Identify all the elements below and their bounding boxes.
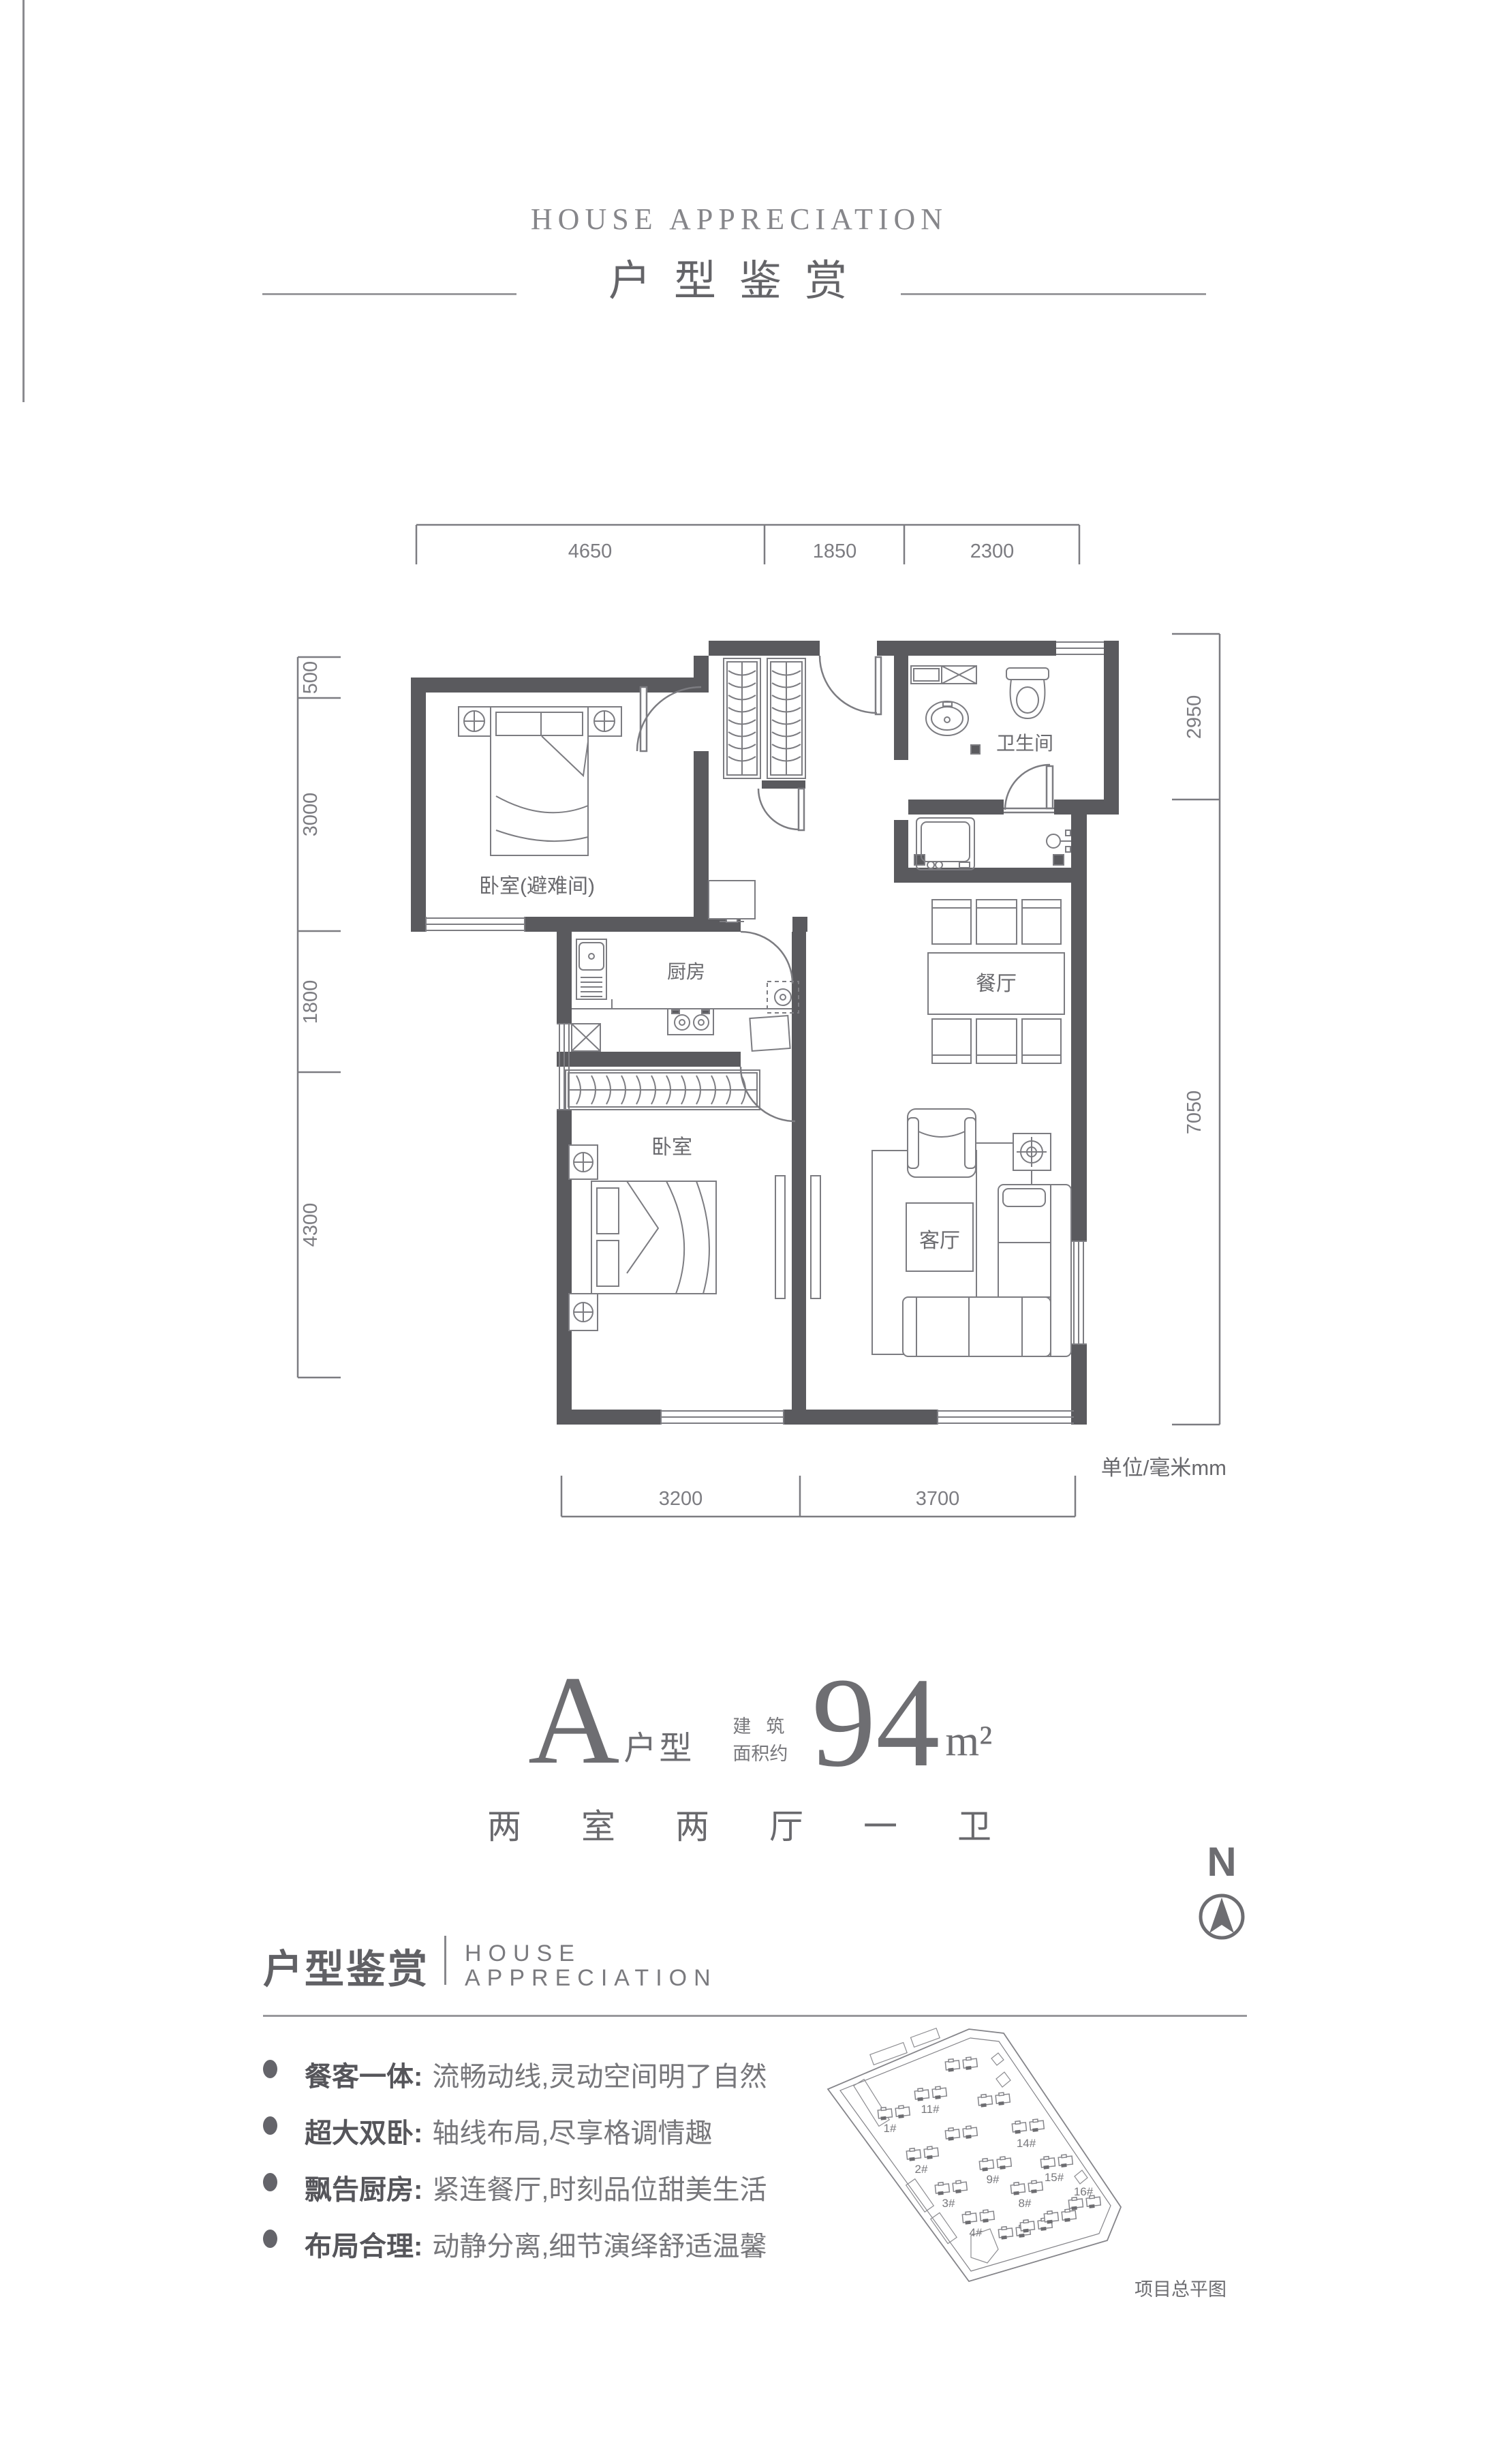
living-furniture <box>872 1109 1071 1356</box>
svg-text:11#: 11# <box>921 2103 940 2116</box>
svg-text:4300: 4300 <box>300 1203 322 1247</box>
svg-text:2#: 2# <box>915 2163 928 2176</box>
header: HOUSE APPRECIATION 户型鉴赏 <box>0 202 1479 307</box>
header-rule-right <box>901 293 1206 295</box>
svg-text:1800: 1800 <box>300 980 322 1024</box>
section-title-en: HOUSE APPRECIATION <box>465 1941 717 1990</box>
room-label-living: 客厅 <box>919 1230 960 1252</box>
unit-type-label: 户型 <box>623 1721 694 1773</box>
room-label-bedroom: 卧室 <box>651 1136 692 1159</box>
entry-closets <box>724 658 805 778</box>
room-label-bedroom-refuge: 卧室(避难间) <box>479 875 595 898</box>
site-buildings <box>878 2056 1101 2240</box>
hall-cabinet <box>709 881 755 922</box>
svg-text:500: 500 <box>300 661 322 694</box>
bedroom-refuge-furniture <box>459 707 621 855</box>
svg-text:2950: 2950 <box>1184 695 1205 740</box>
svg-text:7050: 7050 <box>1184 1091 1205 1135</box>
section-divider <box>444 1936 446 1985</box>
unit-area-unit: m² <box>945 1716 992 1773</box>
bullet-dot-icon <box>263 2230 277 2248</box>
room-label-bathroom: 卫生间 <box>996 733 1053 754</box>
unit-note: 单位/毫米mm <box>1101 1456 1226 1480</box>
svg-text:3000: 3000 <box>300 793 322 837</box>
washing-machine <box>916 818 974 870</box>
poster-page: { "header": { "title_en": "HOUSE APPRECI… <box>0 0 1497 2464</box>
compass: N <box>1191 1834 1252 1956</box>
room-label-kitchen: 厨房 <box>667 961 705 982</box>
unit-type-letter: A <box>528 1669 619 1773</box>
header-title-en: HOUSE APPRECIATION <box>0 202 1479 237</box>
svg-text:1#: 1# <box>884 2122 897 2135</box>
bedroom2-furniture <box>566 1070 820 1330</box>
svg-text:4650: 4650 <box>568 541 613 562</box>
unit-area-prefix: 建筑 面积约 <box>732 1713 799 1773</box>
unit-info: A 户型 建筑 面积约 94 m² <box>528 1669 992 1773</box>
svg-text:15#: 15# <box>1045 2171 1064 2184</box>
kitchen-fixtures <box>572 939 799 1051</box>
unit-layout: 两室两厅一卫 <box>0 1799 1479 1849</box>
header-title-cn: 户型鉴赏 <box>0 246 1479 307</box>
svg-text:4#: 4# <box>970 2226 983 2239</box>
floor-plan: 4650 1850 2300 500 3000 1800 4300 2950 7… <box>259 504 1261 1540</box>
bullet-dot-icon <box>263 2173 277 2191</box>
room-label-dining: 餐厅 <box>976 973 1017 995</box>
svg-text:2300: 2300 <box>970 541 1015 562</box>
compass-needle-icon <box>1209 1898 1234 1933</box>
page-edge-line <box>22 0 25 402</box>
svg-text:14#: 14# <box>1017 2137 1036 2150</box>
svg-text:16#: 16# <box>1074 2185 1094 2198</box>
site-plan: 1# 2# 3# 4# 8# 9# 11# 14# 15# 16# 项目总平图 <box>818 2011 1240 2311</box>
svg-text:8#: 8# <box>1019 2197 1032 2210</box>
svg-text:3200: 3200 <box>659 1488 703 1510</box>
bullet-dot-icon <box>263 2060 277 2078</box>
svg-text:3#: 3# <box>942 2197 955 2210</box>
header-rule-left <box>262 293 516 295</box>
site-plan-caption: 项目总平图 <box>1135 2279 1226 2300</box>
compass-north-label: N <box>1207 1839 1236 1885</box>
svg-text:9#: 9# <box>987 2173 1000 2186</box>
bullet-dot-icon <box>263 2116 277 2135</box>
svg-text:1850: 1850 <box>813 541 857 562</box>
svg-text:3700: 3700 <box>916 1488 960 1510</box>
unit-area-value: 94 <box>812 1673 940 1773</box>
section-title-cn: 户型鉴赏 <box>263 1937 429 1994</box>
